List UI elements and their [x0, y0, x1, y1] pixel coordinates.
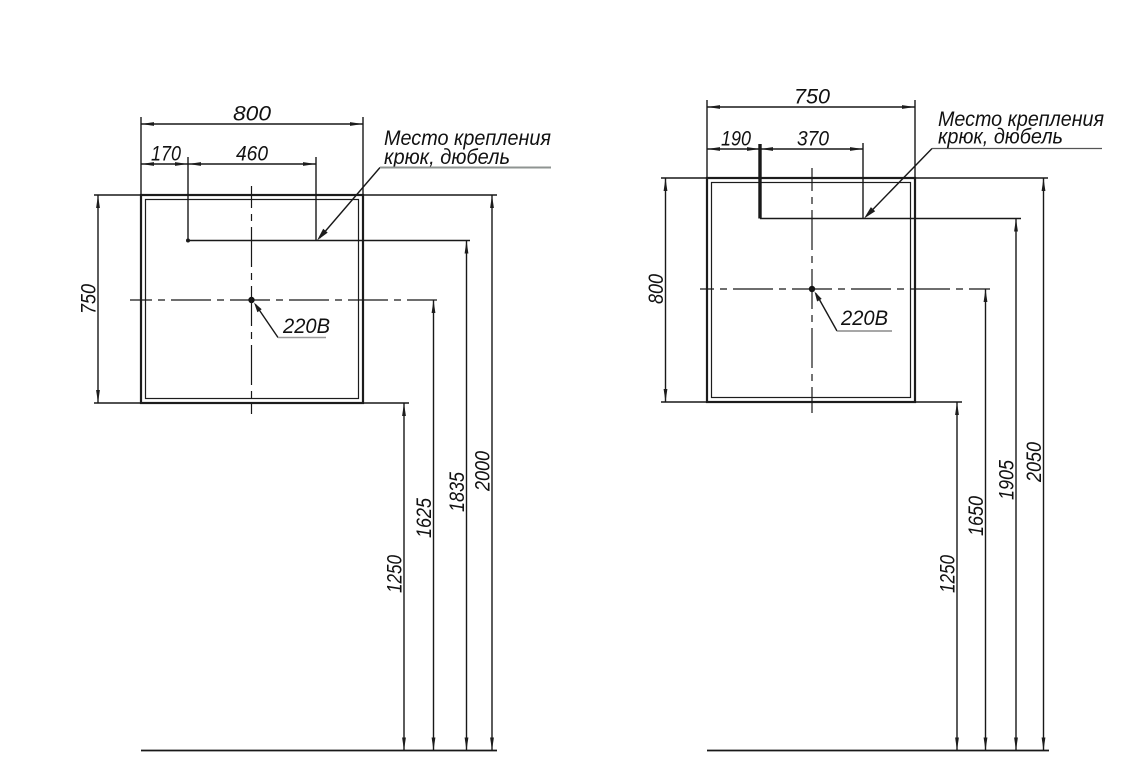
svg-text:2000: 2000 [472, 451, 495, 492]
svg-text:1650: 1650 [965, 496, 988, 536]
svg-text:2050: 2050 [1023, 442, 1046, 483]
svg-text:170: 170 [151, 143, 181, 166]
svg-text:220В: 220В [282, 315, 330, 338]
svg-text:крюк, дюбель: крюк, дюбель [384, 146, 510, 169]
svg-text:750: 750 [794, 86, 830, 109]
svg-text:1250: 1250 [937, 555, 960, 593]
svg-text:крюк, дюбель: крюк, дюбель [938, 126, 1063, 149]
svg-text:460: 460 [236, 143, 268, 166]
svg-text:1835: 1835 [446, 472, 469, 512]
svg-text:750: 750 [78, 284, 101, 314]
svg-text:800: 800 [645, 274, 668, 304]
svg-text:1625: 1625 [413, 498, 436, 538]
svg-text:1905: 1905 [996, 460, 1019, 500]
svg-text:370: 370 [797, 128, 829, 151]
svg-text:1250: 1250 [384, 555, 407, 593]
svg-text:190: 190 [721, 128, 751, 151]
svg-text:220В: 220В [840, 307, 888, 330]
svg-text:800: 800 [233, 103, 271, 126]
